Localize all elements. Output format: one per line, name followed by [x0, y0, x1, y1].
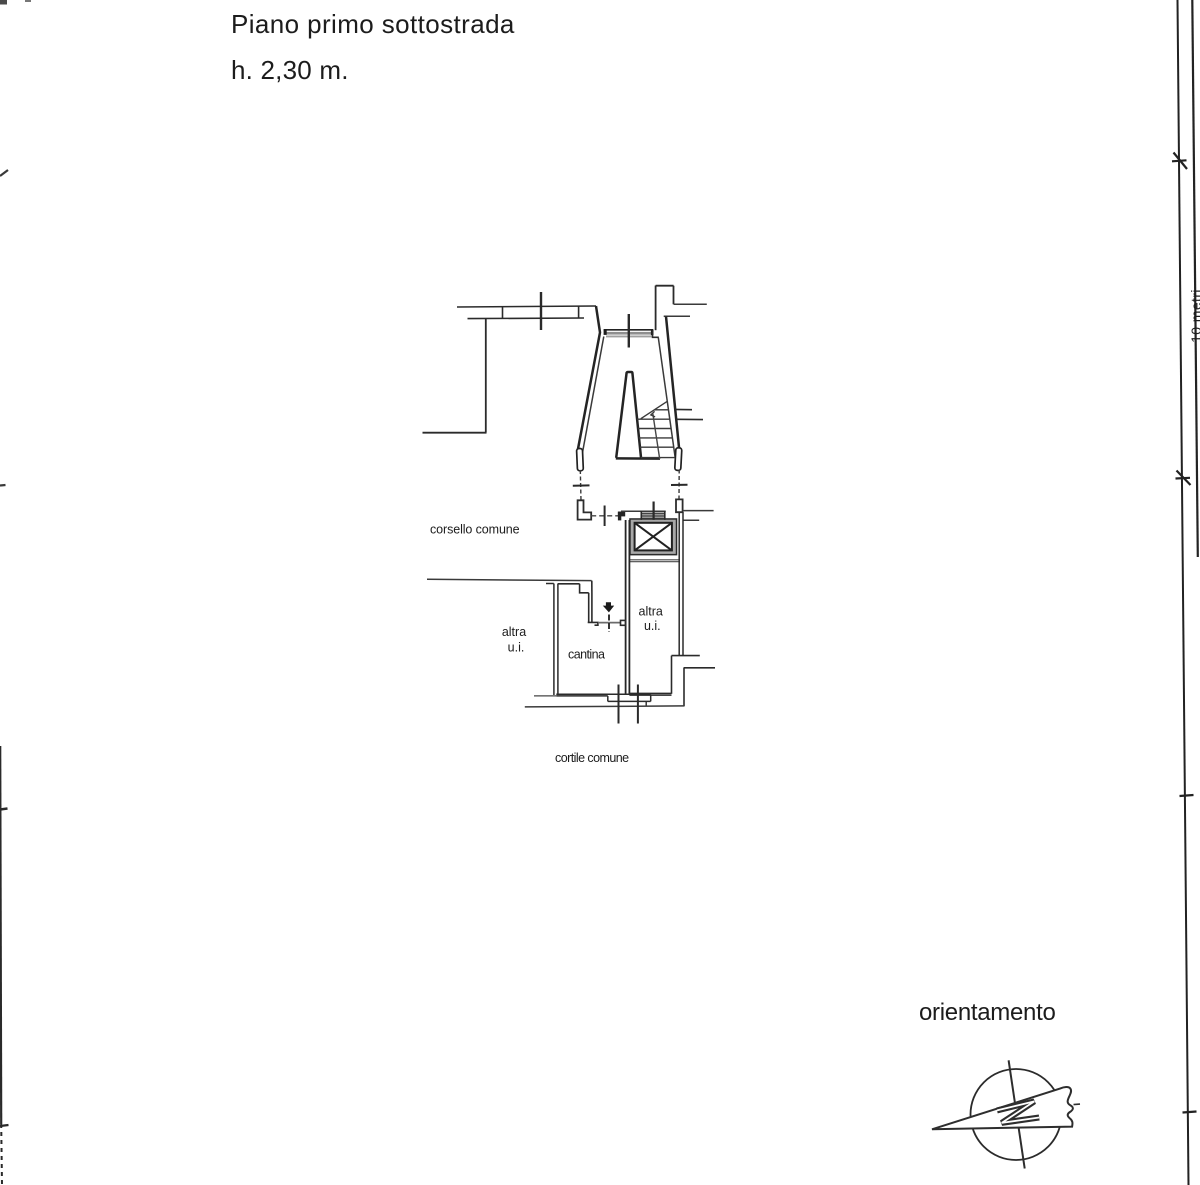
svg-text:u.i.: u.i. [644, 619, 661, 633]
svg-text:altra: altra [502, 625, 526, 639]
svg-text:cortile comune: cortile comune [555, 751, 629, 765]
svg-text:h. 2,30 m.: h. 2,30 m. [231, 55, 349, 85]
svg-text:10 metri: 10 metri [1188, 289, 1200, 343]
svg-text:cantina: cantina [568, 647, 605, 661]
svg-text:altra: altra [639, 605, 663, 619]
svg-text:corsello comune: corsello comune [430, 523, 520, 537]
svg-text:u.i.: u.i. [508, 641, 525, 655]
svg-text:Piano primo sottostrada: Piano primo sottostrada [231, 9, 515, 39]
svg-text:orientamento: orientamento [919, 999, 1056, 1026]
